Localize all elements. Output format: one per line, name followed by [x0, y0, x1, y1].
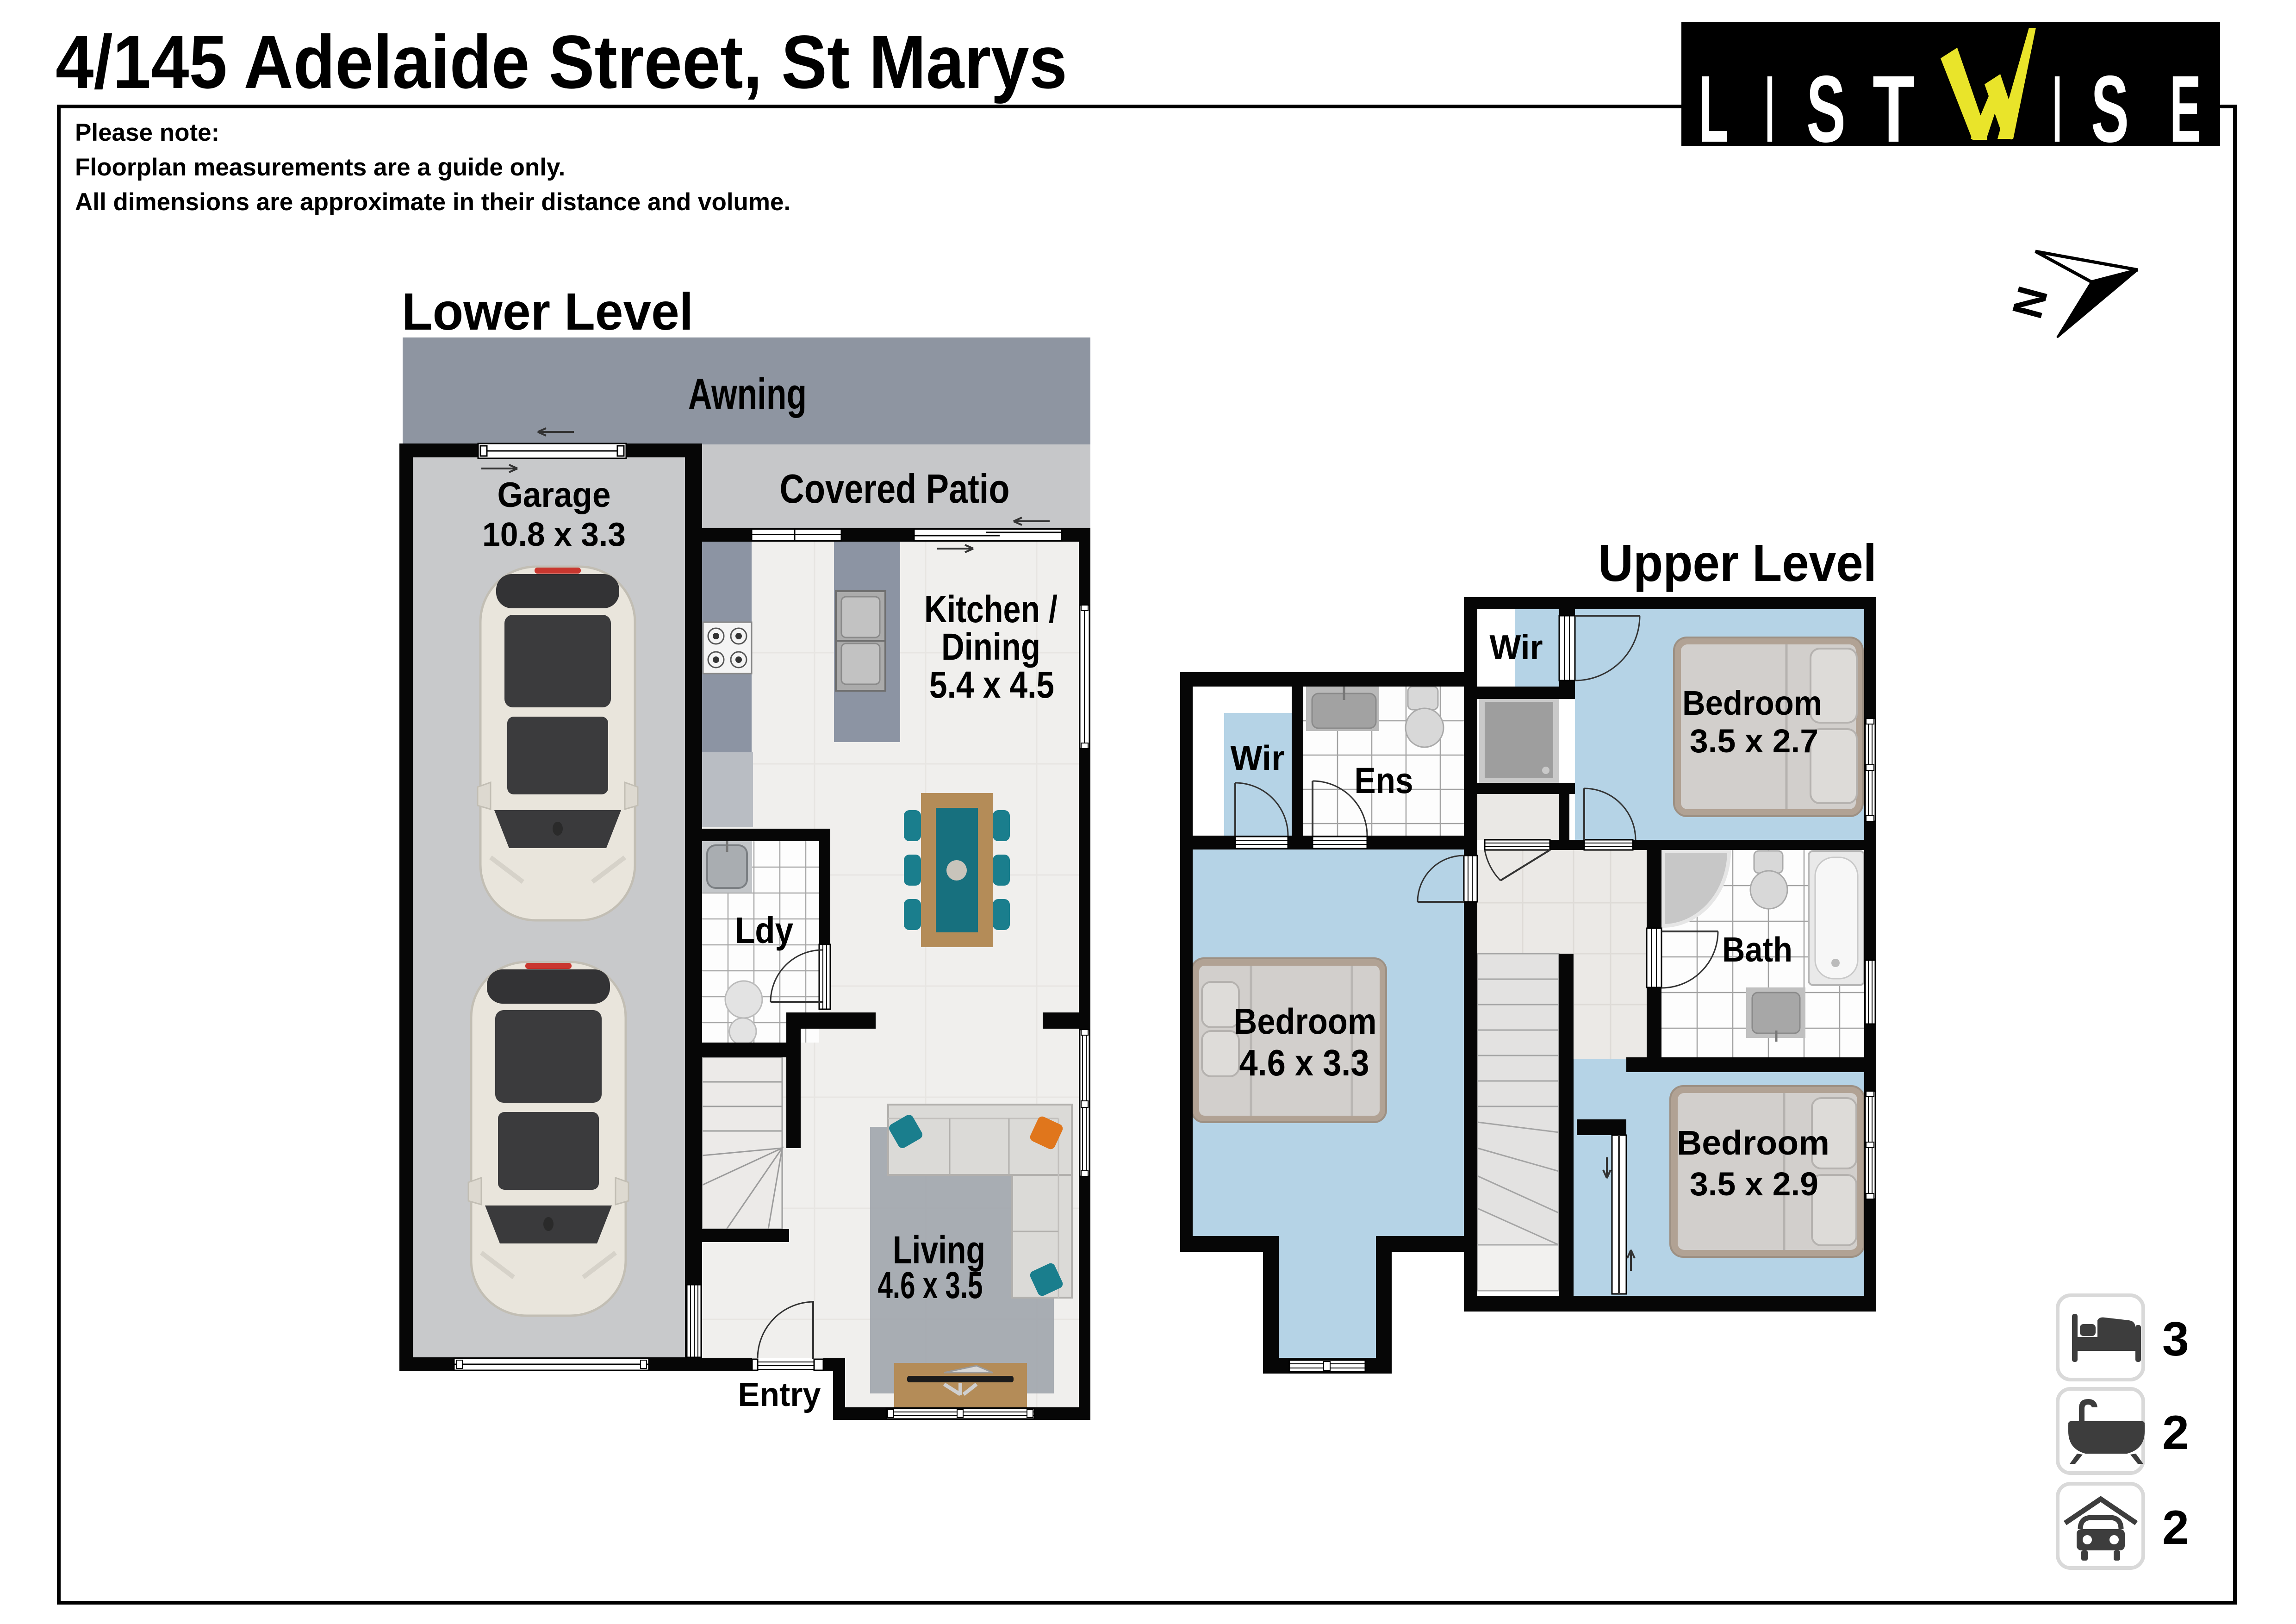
svg-text:Wir: Wir [1231, 738, 1285, 777]
svg-text:5.4 x 4.5: 5.4 x 4.5 [929, 664, 1054, 706]
svg-text:3.5 x 2.9: 3.5 x 2.9 [1690, 1166, 1818, 1203]
svg-text:2: 2 [2162, 1501, 2189, 1555]
svg-text:Please note:: Please note: [75, 119, 219, 146]
svg-text:Awning: Awning [688, 369, 807, 418]
svg-text:2: 2 [2162, 1406, 2189, 1460]
svg-text:Covered Patio: Covered Patio [780, 466, 1010, 512]
svg-text:S: S [1806, 56, 1846, 162]
svg-text:Upper Level: Upper Level [1598, 534, 1877, 592]
svg-text:Floorplan measurements are a g: Floorplan measurements are a guide only. [75, 154, 565, 181]
svg-text:10.8 x 3.3: 10.8 x 3.3 [482, 516, 626, 553]
svg-text:I: I [1765, 56, 1774, 162]
svg-text:I: I [2053, 56, 2062, 162]
svg-text:Ldy: Ldy [735, 910, 793, 951]
svg-text:4/145 Adelaide Street, St Mary: 4/145 Adelaide Street, St Marys [56, 19, 1067, 104]
svg-text:Bedroom: Bedroom [1234, 1001, 1377, 1042]
svg-text:L: L [1699, 56, 1729, 162]
svg-text:Ens: Ens [1355, 760, 1413, 801]
svg-text:Kitchen /: Kitchen / [924, 588, 1058, 631]
svg-text:Garage: Garage [498, 475, 611, 515]
svg-text:Wir: Wir [1490, 628, 1543, 667]
svg-text:All dimensions are approximate: All dimensions are approximate in their … [75, 188, 790, 216]
svg-text:Bedroom: Bedroom [1677, 1124, 1829, 1162]
svg-text:Dining: Dining [941, 626, 1040, 668]
svg-text:S: S [2091, 56, 2129, 162]
svg-text:4.6 x 3.3: 4.6 x 3.3 [1239, 1042, 1369, 1083]
svg-text:E: E [2170, 56, 2201, 162]
svg-text:4.6 x 3.5: 4.6 x 3.5 [878, 1264, 983, 1306]
svg-text:Entry: Entry [738, 1376, 821, 1413]
svg-text:Lower Level: Lower Level [402, 282, 693, 341]
svg-text:3.5 x 2.7: 3.5 x 2.7 [1690, 723, 1818, 760]
svg-text:Bedroom: Bedroom [1682, 684, 1822, 722]
svg-text:Bath: Bath [1722, 930, 1792, 969]
svg-text:T: T [1873, 56, 1915, 162]
svg-text:3: 3 [2162, 1312, 2189, 1366]
